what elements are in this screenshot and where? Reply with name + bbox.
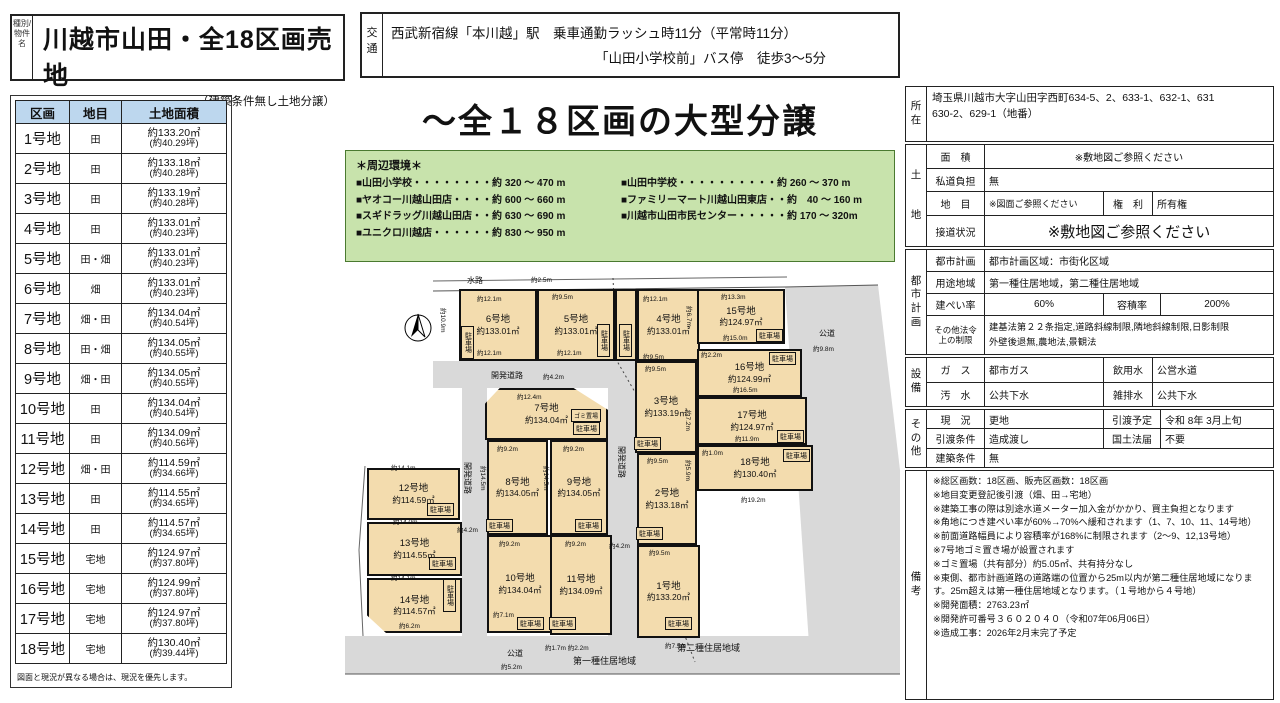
parcel-landtype: 田 bbox=[70, 394, 122, 423]
map-dimension-label: 約19.2m bbox=[741, 494, 766, 504]
map-dimension-label: 約9.2m bbox=[563, 443, 584, 453]
map-parking-label: 駐車場 bbox=[769, 352, 796, 365]
map-parking-label: 駐車場 bbox=[517, 617, 544, 630]
map-parcel-area: 約133.18㎡ bbox=[646, 500, 689, 510]
parcel-landtype: 宅地 bbox=[70, 574, 122, 603]
parcel-area-tsubo: (約40.28坪) bbox=[149, 199, 198, 209]
environment-item: ■山田小学校・・・・・・・・約 320 ～ 470 m bbox=[356, 176, 621, 193]
parcel-landtype: 宅地 bbox=[70, 634, 122, 663]
city-kenpei-value: 60% bbox=[985, 294, 1103, 315]
map-dimension-label: 約2.2m bbox=[701, 349, 722, 359]
table-row: 14号地田約114.57㎡(約34.65坪) bbox=[16, 514, 226, 544]
remark-line: ※7号地ゴミ置き場が設置されます bbox=[933, 544, 1267, 558]
land-menseki-label: 面 積 bbox=[927, 145, 985, 168]
land-chimoku-value: ※図面ご参照ください bbox=[985, 192, 1103, 215]
map-dimension-label: 約6.2m bbox=[399, 620, 420, 630]
environment-item: ■山田中学校・・・・・・・・・・約 260 ～ 370 m bbox=[621, 176, 884, 193]
map-parking-label: 駐車場 bbox=[549, 617, 576, 630]
map-dimension-label: 約9.2m bbox=[499, 538, 520, 548]
map-parcel-name: 6号地 bbox=[486, 314, 510, 325]
city-yoseki-label: 容積率 bbox=[1103, 294, 1161, 315]
map-parcel-area: 約134.04㎡ bbox=[525, 415, 568, 425]
land-chimoku-label: 地 目 bbox=[927, 192, 985, 215]
map-parcel-name: 1号地 bbox=[656, 581, 680, 592]
map-parcel-name: 14号地 bbox=[400, 595, 430, 606]
table-row: 13号地田約114.55㎡(約34.65坪) bbox=[16, 484, 226, 514]
parcel-area: 約134.09㎡(約40.56坪) bbox=[122, 424, 226, 453]
property-header: 種別/物件名 川越市山田・全18区画売地 （建築条件無し土地分譲） bbox=[10, 14, 345, 81]
environment-item: ■ユニクロ川越店・・・・・・約 830 ～ 950 m bbox=[356, 226, 621, 243]
table-row: 18号地宅地約130.40㎡(約39.44坪) bbox=[16, 634, 226, 663]
parcel-area-tsubo: (約40.29坪) bbox=[149, 139, 198, 149]
parcel-landtype: 田・畑 bbox=[70, 244, 122, 273]
category-label: 種別/物件名 bbox=[12, 16, 33, 79]
section-other: その他 現 況 更地 引渡予定 令和 8年 3月上旬 引渡条件 造成渡し 国土法… bbox=[905, 409, 1274, 468]
city-keikaku-label: 都市計画 bbox=[927, 250, 985, 271]
transport-line2: 「山田小学校前」バス停 徒歩3～5分 bbox=[391, 47, 890, 72]
map-parcel-area: 約124.97㎡ bbox=[720, 317, 763, 327]
map-dimension-label: 約15.0m bbox=[723, 332, 748, 342]
parcel-landtype: 田 bbox=[70, 124, 122, 153]
map-parcel-area: 約133.19㎡ bbox=[645, 408, 688, 418]
map-dimension-label: 水路 bbox=[467, 275, 483, 286]
map-parcel-name: 5号地 bbox=[564, 314, 588, 325]
map-parking-label: 駐車場 bbox=[427, 503, 454, 516]
col-header-chimoku: 地目 bbox=[70, 101, 122, 123]
map-dimension-label: 第二種住居地域 bbox=[677, 641, 740, 654]
parcel-area: 約124.97㎡(約37.80坪) bbox=[122, 544, 226, 573]
map-parcel-area: 約134.05㎡ bbox=[558, 488, 601, 498]
table-row: 16号地宅地約124.99㎡(約37.80坪) bbox=[16, 574, 226, 604]
parcel-number: 15号地 bbox=[16, 544, 70, 573]
map-dimension-label: 約9.5m bbox=[643, 351, 664, 361]
parcel-area-tsubo: (約40.23坪) bbox=[149, 259, 198, 269]
remark-line: ※開発許可番号３６０２０４０（令和07年06月06日） bbox=[933, 613, 1267, 627]
table-row: 11号地田約134.09㎡(約40.56坪) bbox=[16, 424, 226, 454]
environment-box: ＊周辺環境＊ ■山田小学校・・・・・・・・約 320 ～ 470 m■ヤオコー川… bbox=[345, 150, 895, 262]
map-parcel-name: 12号地 bbox=[399, 483, 429, 494]
map-parcel-area: 約134.05㎡ bbox=[496, 488, 539, 498]
parcel-area-tsubo: (約37.80坪) bbox=[149, 589, 198, 599]
parcel-area: 約134.04㎡(約40.54坪) bbox=[122, 394, 226, 423]
parcel-area: 約124.97㎡(約37.80坪) bbox=[122, 604, 226, 633]
location-line2: 630-2、629-1（地番） bbox=[932, 106, 1268, 122]
map-parking-label: 駐車場 bbox=[461, 326, 474, 359]
hikiwatashi-value: 令和 8年 3月上旬 bbox=[1161, 410, 1273, 428]
parcel-number: 10号地 bbox=[16, 394, 70, 423]
city-yoto-value: 第一種住居地域，第二種住居地域 bbox=[985, 272, 1273, 293]
map-dimension-label: 約1.7m 約2.2m bbox=[545, 642, 589, 652]
table-row: 9号地畑・田約134.05㎡(約40.55坪) bbox=[16, 364, 226, 394]
environment-item: ■川越市山田市民センター・・・・・約 170 ～ 320m bbox=[621, 209, 884, 226]
map-dimension-label: 約9.8m bbox=[813, 343, 834, 353]
land-kenri-value: 所有権 bbox=[1153, 192, 1273, 215]
section-land: 土地 面 積 ※敷地図ご参照ください 私道負担 無 地 目 ※図面ご参照ください… bbox=[905, 144, 1274, 247]
parcel-table-header: 区画 地目 土地面積 bbox=[16, 101, 226, 124]
transport-box: 交通 西武新宿線「本川越」駅 乗車通勤ラッシュ時11分（平常時11分） 「山田小… bbox=[360, 12, 900, 78]
environment-list-left: ■山田小学校・・・・・・・・約 320 ～ 470 m■ヤオコー川越山田店・・・… bbox=[356, 176, 621, 242]
map-parcel-name: 3号地 bbox=[654, 396, 678, 407]
map-parking-label: 駐車場 bbox=[636, 527, 663, 540]
section-remarks: 備考 ※総区画数：18区画、販売区画数：18区画※地目変更登記後引渡（畑、田→宅… bbox=[905, 470, 1274, 700]
parcel-area-tsubo: (約40.54坪) bbox=[149, 409, 198, 419]
table-row: 1号地田約133.20㎡(約40.29坪) bbox=[16, 124, 226, 154]
map-dimension-label: 約12.1m bbox=[643, 293, 668, 303]
remark-line: ※建築工事の際は別途水道メーター加入金がかかり、買主負担となります bbox=[933, 503, 1267, 517]
map-parking-label: 駐車場 bbox=[756, 329, 783, 342]
parcel-number: 7号地 bbox=[16, 304, 70, 333]
parcel-landtype: 田 bbox=[70, 424, 122, 453]
kokudo-value: 不要 bbox=[1161, 429, 1273, 447]
compass-icon bbox=[405, 314, 431, 341]
map-parcel-name: 16号地 bbox=[735, 362, 765, 373]
joken-value: 造成渡し bbox=[985, 429, 1103, 447]
parcel-area: 約133.01㎡(約40.23坪) bbox=[122, 214, 226, 243]
map-parcel-area: 約133.20㎡ bbox=[647, 592, 690, 602]
map-dimension-label: 約12.4m bbox=[517, 391, 542, 401]
map-dimension-label: 約14.1m bbox=[391, 462, 416, 472]
gas-label: ガ ス bbox=[927, 358, 985, 382]
parcel-landtype: 畑・田 bbox=[70, 364, 122, 393]
site-map: 6号地約133.01㎡5号地約133.01㎡4号地約133.01㎡15号地約12… bbox=[345, 270, 900, 700]
parcel-number: 18号地 bbox=[16, 634, 70, 663]
setsubi-label: 設備 bbox=[906, 358, 927, 406]
map-parcel-name: 17号地 bbox=[737, 410, 767, 421]
map-dimension-label: 開発道路 bbox=[462, 462, 473, 494]
map-parcel-name: 8号地 bbox=[505, 477, 529, 488]
map-dimension-label: 第一種住居地域 bbox=[573, 654, 636, 667]
map-dimension-label: 約13.3m bbox=[721, 291, 746, 301]
map-dimension-label: 約4.2m bbox=[609, 540, 630, 550]
parcel-number: 11号地 bbox=[16, 424, 70, 453]
transport-label: 交通 bbox=[362, 14, 383, 76]
remark-line: ※地目変更登記後引渡（畑、田→宅地） bbox=[933, 489, 1267, 503]
map-dimension-label: 約9.2m bbox=[497, 443, 518, 453]
parcel-number: 8号地 bbox=[16, 334, 70, 363]
map-dimension-label: 開発道路 bbox=[616, 446, 627, 478]
map-dimension-label: 約12.1m bbox=[477, 347, 502, 357]
zappai-value: 公共下水 bbox=[1153, 383, 1273, 407]
table-row: 8号地田・畑約134.05㎡(約40.55坪) bbox=[16, 334, 226, 364]
parcel-landtype: 畑 bbox=[70, 274, 122, 303]
table-row: 6号地畑約133.01㎡(約40.23坪) bbox=[16, 274, 226, 304]
location-line1: 埼玉県川越市大字山田字西町634-5、2、633-1、632-1、631 bbox=[932, 90, 1268, 106]
table-row: 4号地田約133.01㎡(約40.23坪) bbox=[16, 214, 226, 244]
parcel-area: 約134.05㎡(約40.55坪) bbox=[122, 334, 226, 363]
map-dimension-label: 約7.1m bbox=[493, 609, 514, 619]
map-parking-label: 駐車場 bbox=[597, 324, 610, 357]
table-row: 17号地宅地約124.97㎡(約37.80坪) bbox=[16, 604, 226, 634]
city-kenpei-label: 建ぺい率 bbox=[927, 294, 985, 315]
table-row: 2号地田約133.18㎡(約40.28坪) bbox=[16, 154, 226, 184]
map-dimension-label: 約9.5m bbox=[645, 363, 666, 373]
parcel-landtype: 宅地 bbox=[70, 544, 122, 573]
land-shido-value: 無 bbox=[985, 169, 1273, 192]
map-dimension-label: 約12.1m bbox=[477, 293, 502, 303]
parcel-number: 16号地 bbox=[16, 574, 70, 603]
kenchiku-label: 建築条件 bbox=[927, 449, 985, 467]
hikiwatashi-label: 引渡予定 bbox=[1103, 410, 1161, 428]
land-label: 土地 bbox=[906, 145, 927, 246]
map-parking-label: 駐車場 bbox=[486, 519, 513, 532]
parcel-area: 約124.99㎡(約37.80坪) bbox=[122, 574, 226, 603]
environment-list-right: ■山田中学校・・・・・・・・・・約 260 ～ 370 m■ファミリーマート川越… bbox=[621, 176, 884, 242]
map-parcel-name: 13号地 bbox=[400, 538, 430, 549]
map-dimension-label: 約14.5m bbox=[542, 466, 552, 491]
parcel-area-tsubo: (約40.54坪) bbox=[149, 319, 198, 329]
remark-line: ※ゴミ置場（共有部分）約5.05㎡、共有持分なし bbox=[933, 558, 1267, 572]
map-parcel-area: 約133.01㎡ bbox=[477, 326, 520, 336]
parcel-area: 約133.01㎡(約40.23坪) bbox=[122, 274, 226, 303]
table-row: 10号地田約134.04㎡(約40.54坪) bbox=[16, 394, 226, 424]
map-dimension-label: 約14.0m bbox=[393, 516, 418, 526]
map-parcel-area: 約133.01㎡ bbox=[555, 326, 598, 336]
environment-title: ＊周辺環境＊ bbox=[356, 157, 884, 173]
table-row: 15号地宅地約124.97㎡(約37.80坪) bbox=[16, 544, 226, 574]
map-dimension-label: 約9.5m bbox=[649, 547, 670, 557]
remark-line: ※角地につき建ぺい率が60%→70%へ緩和されます（1、7、10、11、14号地… bbox=[933, 516, 1267, 530]
map-dimension-label: 公道 bbox=[507, 648, 523, 659]
parcel-number: 1号地 bbox=[16, 124, 70, 153]
parcel-landtype: 田 bbox=[70, 214, 122, 243]
map-parcel-area: 約124.97㎡ bbox=[731, 422, 774, 432]
remark-line: ※開発面積：2763.23㎡ bbox=[933, 599, 1267, 613]
map-parking-label: 駐車場 bbox=[665, 617, 692, 630]
parcel-number: 13号地 bbox=[16, 484, 70, 513]
parcel-area: 約114.57㎡(約34.65坪) bbox=[122, 514, 226, 543]
land-shido-label: 私道負担 bbox=[927, 169, 985, 192]
map-dimension-label: 約9.2m bbox=[565, 538, 586, 548]
parcel-area-tsubo: (約34.65坪) bbox=[149, 499, 198, 509]
map-parcel-area: 約133.01㎡ bbox=[647, 326, 690, 336]
remark-line: ※総区画数：18区画、販売区画数：18区画 bbox=[933, 475, 1267, 489]
map-parcel-name: 18号地 bbox=[740, 457, 770, 468]
parcel-landtype: 田・畑 bbox=[70, 334, 122, 363]
table-row: 12号地畑・田約114.59㎡(約34.66坪) bbox=[16, 454, 226, 484]
remark-line: ※造成工事：2026年2月末完了予定 bbox=[933, 627, 1267, 641]
map-parking-label: 駐車場 bbox=[429, 557, 456, 570]
land-kenri-label: 権 利 bbox=[1103, 192, 1153, 215]
table-note: 図面と現況が異なる場合は、現況を優先します。 bbox=[15, 672, 227, 683]
land-setsudo-label: 接道状況 bbox=[927, 216, 985, 246]
map-dimension-label: 約14.1m bbox=[391, 572, 416, 582]
map-parking-label: 駐車場 bbox=[573, 422, 600, 435]
sonota-label: その他 bbox=[906, 410, 927, 467]
inyo-value: 公営水道 bbox=[1153, 358, 1273, 382]
parcel-area: 約133.18㎡(約40.28坪) bbox=[122, 154, 226, 183]
map-parcel-area: 約114.57㎡ bbox=[393, 606, 435, 616]
parcel-area: 約114.55㎡(約34.65坪) bbox=[122, 484, 226, 513]
land-menseki-value: ※敷地図ご参照ください bbox=[985, 145, 1273, 168]
parcel-landtype: 畑・田 bbox=[70, 304, 122, 333]
parcel-area: 約130.40㎡(約39.44坪) bbox=[122, 634, 226, 663]
parcel-number: 6号地 bbox=[16, 274, 70, 303]
parcel-table-body: 1号地田約133.20㎡(約40.29坪)2号地田約133.18㎡(約40.28… bbox=[16, 124, 226, 663]
parcel-area-tsubo: (約40.28坪) bbox=[149, 169, 198, 179]
genkyo-value: 更地 bbox=[985, 410, 1103, 428]
page-title: 川越市山田・全18区画売地 bbox=[43, 20, 335, 92]
osui-label: 汚 水 bbox=[927, 383, 985, 407]
zappai-label: 雑排水 bbox=[1103, 383, 1153, 407]
parcel-area-tsubo: (約37.80坪) bbox=[149, 619, 198, 629]
environment-item: ■ヤオコー川越山田店・・・・約 600 ～ 660 m bbox=[356, 193, 621, 210]
table-row: 3号地田約133.19㎡(約40.28坪) bbox=[16, 184, 226, 214]
map-parcel-area: 約130.40㎡ bbox=[734, 469, 777, 479]
map-dimension-label: 約2.5m bbox=[531, 274, 552, 284]
kenchiku-value: 無 bbox=[985, 449, 1273, 467]
parcel-landtype: 田 bbox=[70, 484, 122, 513]
gas-value: 都市ガス bbox=[985, 358, 1103, 382]
parcel-area-tsubo: (約34.66坪) bbox=[149, 469, 198, 479]
parcel-number: 14号地 bbox=[16, 514, 70, 543]
parcel-area-tsubo: (約40.55坪) bbox=[149, 349, 198, 359]
map-parking-label: 駐車場 bbox=[575, 519, 602, 532]
city-keikaku-value: 都市計画区域：市街化区域 bbox=[985, 250, 1273, 271]
parcel-area-tsubo: (約40.23坪) bbox=[149, 289, 198, 299]
map-dimension-label: 約10.9m bbox=[439, 308, 449, 333]
biko-label: 備考 bbox=[906, 471, 927, 699]
map-dimension-label: 約14.5m bbox=[479, 466, 489, 491]
map-parcel-area: 約134.09㎡ bbox=[560, 586, 603, 596]
map-parcel-area: 約124.99㎡ bbox=[728, 374, 771, 384]
map-dimension-label: 約4.2m bbox=[457, 524, 478, 534]
map-dimension-label: 開発道路 bbox=[491, 370, 523, 381]
parcel-number: 5号地 bbox=[16, 244, 70, 273]
parcel-number: 17号地 bbox=[16, 604, 70, 633]
city-hoki-label: その他法令上の制限 bbox=[927, 316, 985, 354]
parcel-area-tsubo: (約40.23坪) bbox=[149, 229, 198, 239]
main-title: ～全１８区画の大型分譲 bbox=[345, 94, 895, 143]
parcel-landtype: 宅地 bbox=[70, 604, 122, 633]
map-parcel-name: 4号地 bbox=[656, 314, 680, 325]
map-dimension-label: 約1.0m bbox=[702, 447, 723, 457]
parcel-area: 約133.01㎡(約40.23坪) bbox=[122, 244, 226, 273]
land-setsudo-value: ※敷地図ご参照ください bbox=[985, 216, 1273, 246]
map-parcel-name: 7号地 bbox=[534, 403, 558, 414]
parcel-number: 3号地 bbox=[16, 184, 70, 213]
remark-line: ※東側、都市計画道路の道路端の位置から25m以内が第二種住居地域になります。25… bbox=[933, 572, 1267, 600]
parcel-area-tsubo: (約40.56坪) bbox=[149, 439, 198, 449]
parcel-area-tsubo: (約37.80坪) bbox=[149, 559, 198, 569]
map-parcel-name: 2号地 bbox=[655, 488, 679, 499]
city-yoseki-value: 200% bbox=[1161, 294, 1273, 315]
location-label: 所在 bbox=[906, 87, 927, 141]
map-parking-label: 駐車場 bbox=[783, 449, 810, 462]
section-city-planning: 都市計画 都市計画 都市計画区域：市街化区域 用途地域 第一種住居地域，第二種住… bbox=[905, 249, 1274, 355]
parcel-area: 約114.59㎡(約34.66坪) bbox=[122, 454, 226, 483]
map-parking-label: 駐車場 bbox=[443, 579, 456, 612]
map-dimension-label: 公道 bbox=[819, 328, 835, 339]
parcel-landtype: 田 bbox=[70, 154, 122, 183]
map-parcel-name: 9号地 bbox=[567, 477, 591, 488]
map-dimension-label: 約11.9m bbox=[735, 433, 759, 443]
map-dimension-label: 約5.9m bbox=[684, 460, 694, 481]
map-dimension-label: 約6.7m bbox=[685, 306, 695, 327]
city-label: 都市計画 bbox=[906, 250, 927, 354]
map-dimension-label: 約9.5m bbox=[552, 291, 573, 301]
map-parking-label: 駐車場 bbox=[777, 430, 804, 443]
osui-value: 公共下水 bbox=[985, 383, 1103, 407]
genkyo-label: 現 況 bbox=[927, 410, 985, 428]
col-header-menseki: 土地面積 bbox=[122, 101, 226, 123]
kokudo-label: 国土法届 bbox=[1103, 429, 1161, 447]
environment-item: ■ファミリーマート川越山田東店・・約 40 ～ 160 m bbox=[621, 193, 884, 210]
joken-label: 引渡条件 bbox=[927, 429, 985, 447]
parcel-area: 約133.20㎡(約40.29坪) bbox=[122, 124, 226, 153]
parcel-area: 約134.05㎡(約40.55坪) bbox=[122, 364, 226, 393]
section-utilities: 設備 ガ ス 都市ガス 飲用水 公営水道 汚 水 公共下水 雑排水 公共下水 bbox=[905, 357, 1274, 407]
parcel-area-tsubo: (約34.65坪) bbox=[149, 529, 198, 539]
map-parking-label: 駐車場 bbox=[619, 324, 632, 357]
city-yoto-label: 用途地域 bbox=[927, 272, 985, 293]
section-location: 所在 埼玉県川越市大字山田字西町634-5、2、633-1、632-1、631 … bbox=[905, 86, 1274, 142]
city-hoki-line2: 外壁後退無,農地法,景観法 bbox=[989, 335, 1096, 350]
parcel-number: 9号地 bbox=[16, 364, 70, 393]
remark-line: ※前面道路幅員により容積率が168%に制限されます（2～9、12,13号地） bbox=[933, 530, 1267, 544]
map-dimension-label: 約12.1m bbox=[557, 347, 582, 357]
parcel-landtype: 田 bbox=[70, 184, 122, 213]
parcel-landtype: 田 bbox=[70, 514, 122, 543]
parcel-area-tsubo: (約40.55坪) bbox=[149, 379, 198, 389]
parcel-area: 約133.19㎡(約40.28坪) bbox=[122, 184, 226, 213]
environment-item: ■スギドラッグ川越山田店・・約 630 ～ 690 m bbox=[356, 209, 621, 226]
table-row: 5号地田・畑約133.01㎡(約40.23坪) bbox=[16, 244, 226, 274]
inyo-label: 飲用水 bbox=[1103, 358, 1153, 382]
map-garbage-area-label: ゴミ置場 bbox=[571, 409, 601, 422]
map-parcel-area: 約134.04㎡ bbox=[499, 585, 542, 595]
map-dimension-label: 約5.2m bbox=[501, 661, 522, 671]
parcel-area: 約134.04㎡(約40.54坪) bbox=[122, 304, 226, 333]
table-row: 7号地畑・田約134.04㎡(約40.54坪) bbox=[16, 304, 226, 334]
map-dimension-label: 約16.5m bbox=[733, 384, 758, 394]
map-dimension-label: 約4.2m bbox=[543, 371, 564, 381]
transport-line1: 西武新宿線「本川越」駅 乗車通勤ラッシュ時11分（平常時11分） bbox=[391, 22, 890, 47]
parcel-table-box: 区画 地目 土地面積 1号地田約133.20㎡(約40.29坪)2号地田約133… bbox=[10, 95, 232, 688]
parcel-landtype: 畑・田 bbox=[70, 454, 122, 483]
parcel-area-tsubo: (約39.44坪) bbox=[149, 649, 198, 659]
col-header-kukaku: 区画 bbox=[16, 101, 70, 123]
parcel-number: 12号地 bbox=[16, 454, 70, 483]
map-parcel-name: 15号地 bbox=[726, 306, 756, 317]
city-hoki-line1: 建基法第２２条指定,道路斜線制限,隣地斜線制限,日影制限 bbox=[989, 320, 1229, 335]
parcel-number: 2号地 bbox=[16, 154, 70, 183]
parcel-number: 4号地 bbox=[16, 214, 70, 243]
map-parcel-name: 11号地 bbox=[567, 574, 596, 585]
map-parking-label: 駐車場 bbox=[634, 437, 661, 450]
map-parcel-name: 10号地 bbox=[505, 573, 535, 584]
map-dimension-label: 約7.2m bbox=[684, 410, 694, 431]
map-dimension-label: 約9.5m bbox=[647, 455, 668, 465]
